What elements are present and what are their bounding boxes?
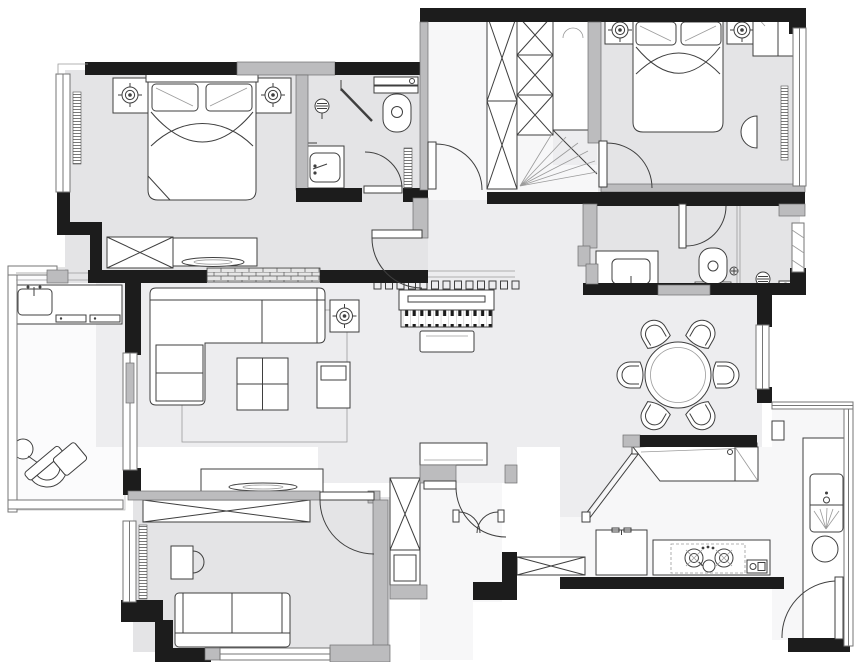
round-table [645,342,711,408]
brick-half-wall [207,268,320,282]
radiator [139,525,147,599]
laundry-sink-cabinet [13,285,122,324]
window-bedroom-bl-bottom [220,648,330,660]
entry-corridor-lower [420,602,473,660]
side-table [317,362,350,408]
ceiling-light [330,300,359,332]
corridor-floor [428,200,585,288]
round-basin [812,536,838,562]
window-bedroom-tl [56,74,70,192]
wardrobe-x [143,500,310,522]
window-bedroom-bl [123,521,136,602]
window-shower-frosted [792,223,804,272]
wardrobe-x [107,237,173,268]
piano-bench [420,331,474,352]
tv-dish [182,258,244,267]
floor-plan-page [0,0,860,662]
double-bed [631,12,725,132]
entry [517,557,585,575]
tall-cabinet-x [390,478,420,585]
tv-dish [229,483,297,491]
small-appliance [747,560,767,573]
console-cabinet [420,443,487,465]
desk [171,546,193,579]
radiator [404,148,412,188]
high-window [237,62,335,75]
chair [713,362,739,388]
sofa-bed [175,593,290,647]
cooktop-counter [653,540,770,575]
refrigerator [596,528,647,575]
window-dining-east [756,325,769,389]
sliding-door-living-balcony [123,353,137,470]
radiator [781,86,788,160]
shoe-cabinet-x [517,557,585,575]
coffee-table [237,358,288,410]
vanity-sink [306,146,344,188]
radiator [73,92,81,164]
chair [617,362,643,388]
floor-plan [0,0,860,662]
pillow [206,84,252,111]
double-bed [146,73,258,200]
window-master-right [793,28,806,186]
door-sill [658,285,710,295]
utility-appliance [772,421,784,440]
